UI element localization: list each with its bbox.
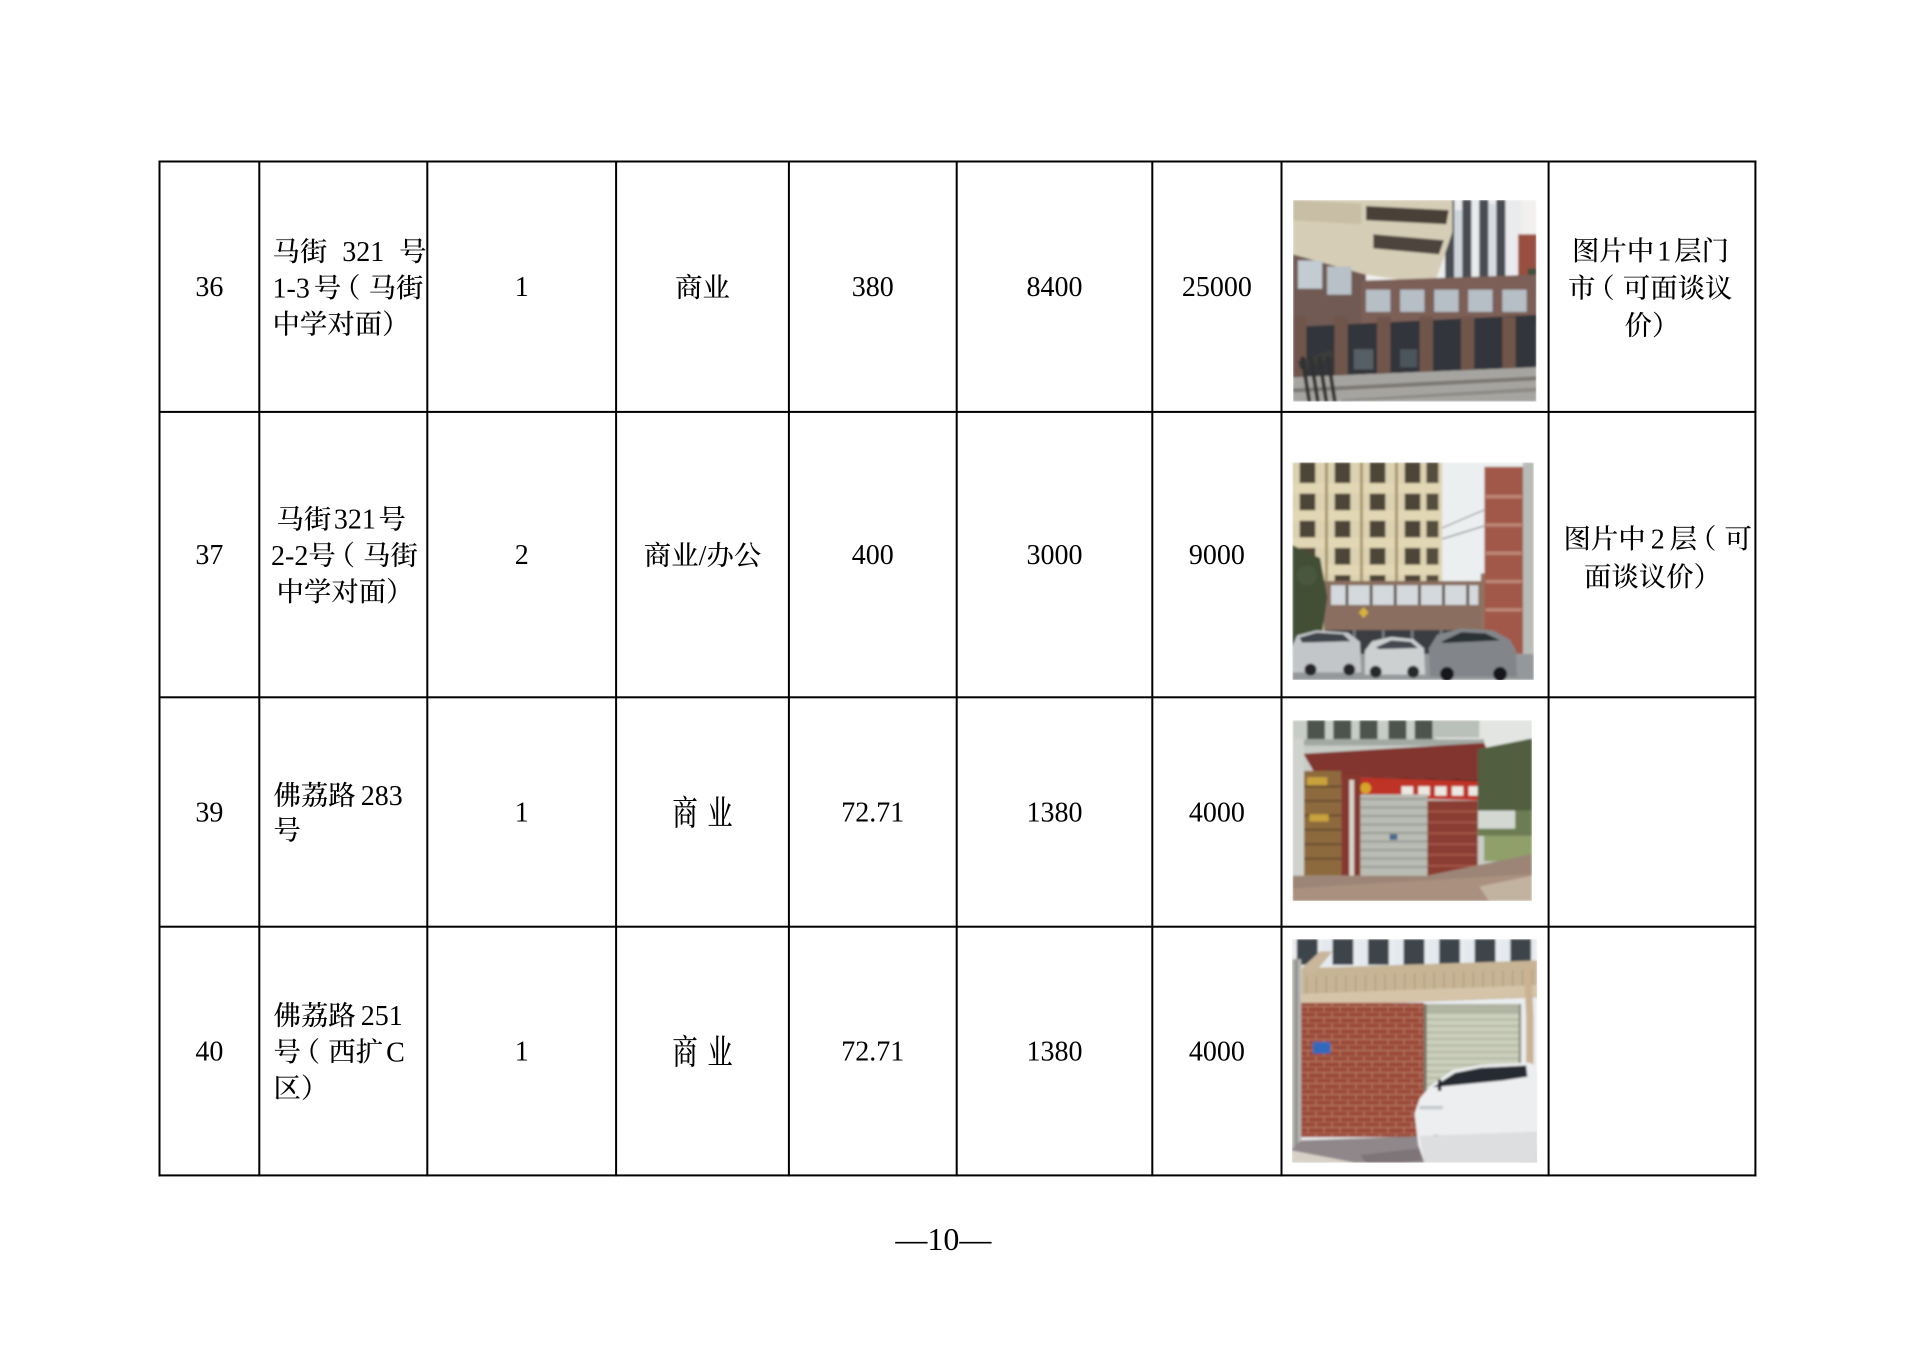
svg-text:321: 321 [342,237,384,268]
svg-text:1380: 1380 [1027,797,1083,828]
svg-text:36: 36 [195,272,223,303]
svg-text:72.71: 72.71 [841,1036,904,1067]
svg-text:1-3: 1-3 [273,273,310,304]
svg-text:9000: 9000 [1189,540,1245,571]
svg-text:1380: 1380 [1027,1036,1083,1067]
svg-text:25000: 25000 [1182,272,1252,303]
svg-text:2: 2 [515,540,529,571]
svg-text:400: 400 [852,540,894,571]
svg-text:1: 1 [515,797,529,828]
svg-text:3000: 3000 [1027,540,1083,571]
svg-text:1: 1 [1657,236,1671,267]
svg-text:37: 37 [195,540,223,571]
svg-text:321: 321 [334,505,376,536]
svg-text:40: 40 [195,1036,223,1067]
svg-text:380: 380 [852,272,894,303]
svg-text:39: 39 [195,797,223,828]
svg-text:C: C [386,1037,405,1068]
svg-text:—10—: —10— [894,1221,992,1257]
svg-text:283: 283 [361,781,403,812]
svg-text:72.71: 72.71 [841,797,904,828]
svg-text:8400: 8400 [1027,272,1083,303]
svg-text:1: 1 [515,272,529,303]
svg-text:/: / [699,541,707,572]
svg-text:251: 251 [361,1001,403,1032]
svg-text:1: 1 [515,1036,529,1067]
svg-text:4000: 4000 [1189,797,1245,828]
svg-text:2: 2 [1651,524,1665,555]
svg-text:2-2: 2-2 [271,541,308,572]
svg-text:4000: 4000 [1189,1036,1245,1067]
